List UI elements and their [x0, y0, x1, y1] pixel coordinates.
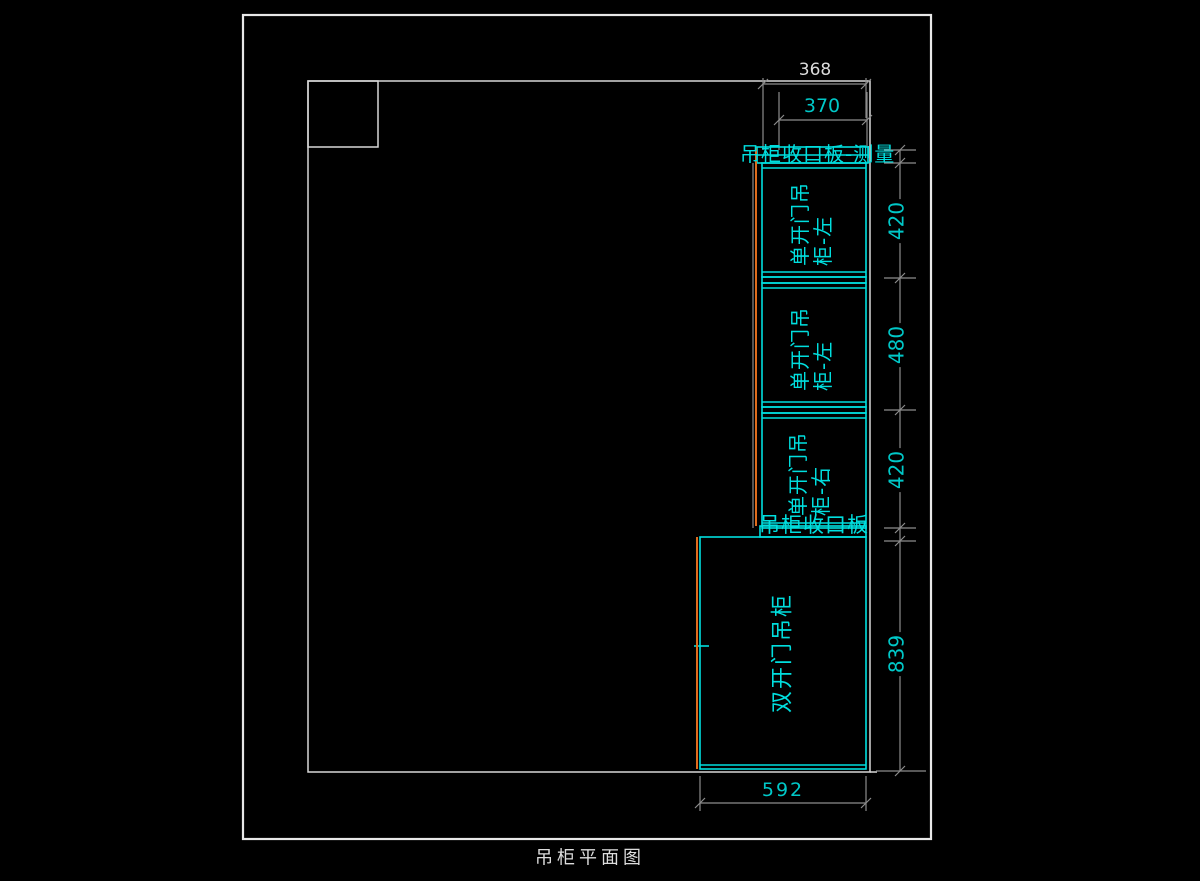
- cabinet-gap-1: [762, 277, 866, 283]
- dim-text-480: 480: [886, 323, 909, 367]
- accent-lines: [697, 148, 756, 769]
- dim-text-370: 370: [804, 96, 840, 118]
- cabinet-bottom-label: 单开门吊柜-右: [787, 424, 833, 516]
- cad-drawing: [0, 0, 1200, 881]
- dim-text-368: 368: [799, 61, 831, 81]
- cabinet-middle-label: 单开门吊柜-左: [789, 299, 835, 391]
- cabinet-gap-2: [762, 407, 866, 413]
- upper-filler-label: 吊柜收口板-测量: [740, 143, 895, 166]
- dim-text-420-lower: 420: [886, 448, 909, 492]
- dim-text-420-upper: 420: [886, 199, 909, 243]
- dim-text-839: 839: [886, 632, 909, 676]
- wall-recess-square: [308, 81, 378, 147]
- drawing-title: 吊柜平面图: [535, 849, 645, 870]
- dim-text-592: 592: [762, 780, 804, 802]
- cabinet-top-label: 单开门吊柜-左: [789, 174, 835, 266]
- lower-filler-label: 吊柜收口板: [759, 513, 869, 537]
- cabinet-large-label: 双开门吊柜: [770, 593, 795, 713]
- cad-canvas: 368 370 420 480 420 839 592 吊柜收口板-测量 吊柜收…: [0, 0, 1200, 881]
